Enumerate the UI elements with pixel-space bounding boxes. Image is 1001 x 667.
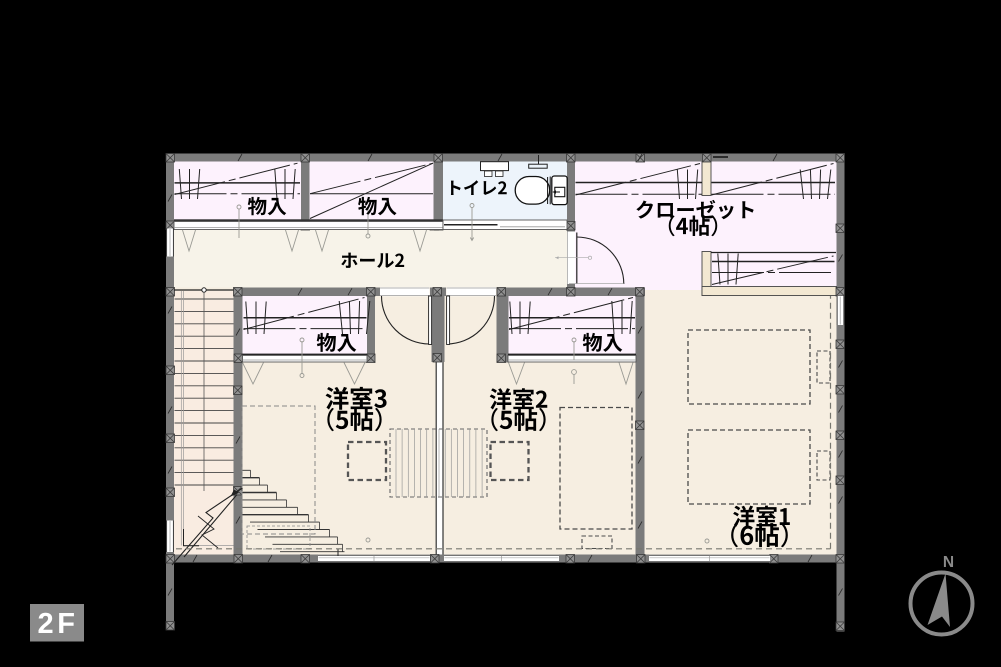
svg-text:2F: 2F <box>37 608 78 640</box>
svg-text:N: N <box>943 554 954 571</box>
